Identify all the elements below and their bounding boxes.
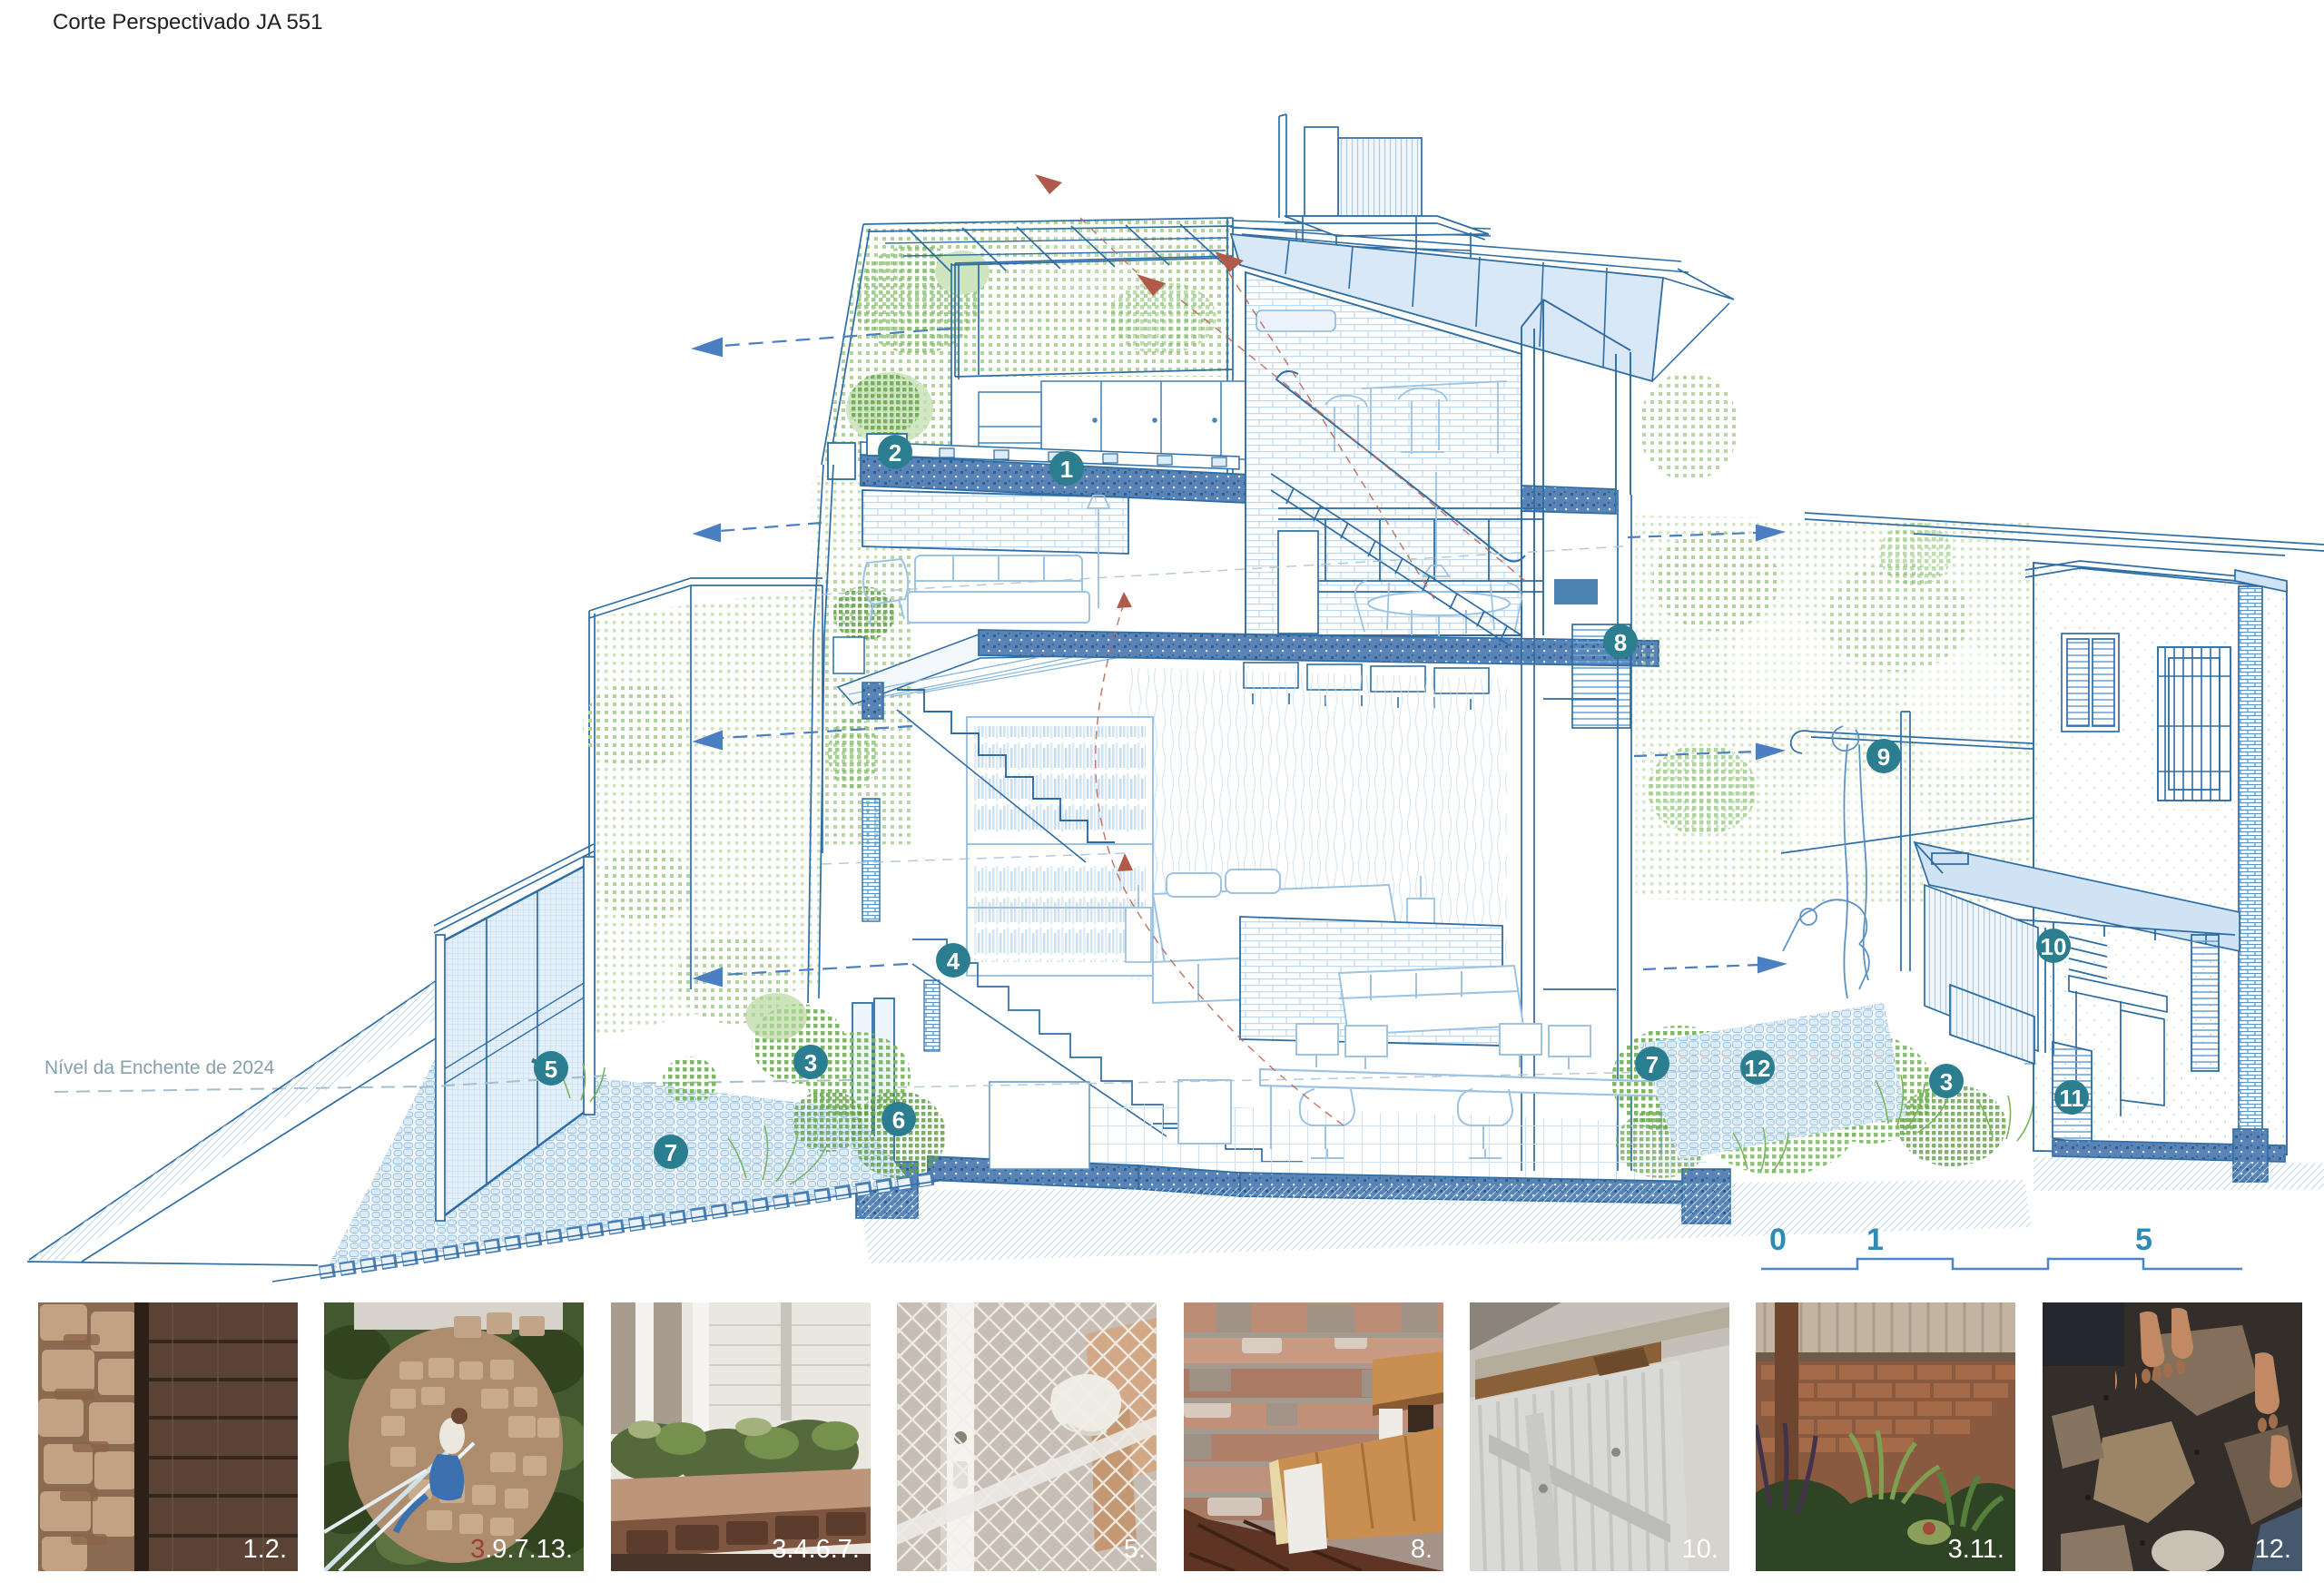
svg-text:9: 9 xyxy=(1877,743,1890,771)
svg-text:7: 7 xyxy=(1646,1051,1659,1078)
svg-text:3.9.7.13.: 3.9.7.13. xyxy=(470,1535,573,1564)
svg-text:10.: 10. xyxy=(1682,1535,1718,1564)
svg-text:3: 3 xyxy=(1940,1068,1953,1096)
svg-text:5.: 5. xyxy=(1124,1535,1146,1564)
svg-text:Corte Perspectivado JA 551: Corte Perspectivado JA 551 xyxy=(53,10,323,34)
svg-text:3.4.6.7.: 3.4.6.7. xyxy=(772,1535,860,1564)
svg-text:10: 10 xyxy=(2041,933,2067,960)
svg-text:6: 6 xyxy=(892,1106,905,1134)
svg-text:5: 5 xyxy=(2135,1223,2152,1257)
svg-text:11: 11 xyxy=(2059,1085,2084,1112)
svg-text:8: 8 xyxy=(1614,629,1627,656)
svg-text:3: 3 xyxy=(804,1049,817,1076)
svg-text:0: 0 xyxy=(1769,1223,1787,1257)
svg-text:2: 2 xyxy=(889,439,901,467)
svg-text:3.11.: 3.11. xyxy=(1948,1535,2004,1564)
svg-text:1: 1 xyxy=(1060,456,1073,483)
svg-text:5: 5 xyxy=(545,1056,557,1083)
svg-text:Nível da Enchente de 2024: Nível da Enchente de 2024 xyxy=(44,1057,275,1078)
svg-text:8.: 8. xyxy=(1411,1535,1433,1564)
svg-text:4: 4 xyxy=(947,948,960,975)
svg-text:7: 7 xyxy=(665,1139,677,1166)
svg-text:12: 12 xyxy=(1745,1055,1771,1082)
svg-text:1.2.: 1.2. xyxy=(243,1535,287,1564)
svg-text:12.: 12. xyxy=(2255,1535,2291,1564)
svg-text:1: 1 xyxy=(1866,1223,1884,1257)
